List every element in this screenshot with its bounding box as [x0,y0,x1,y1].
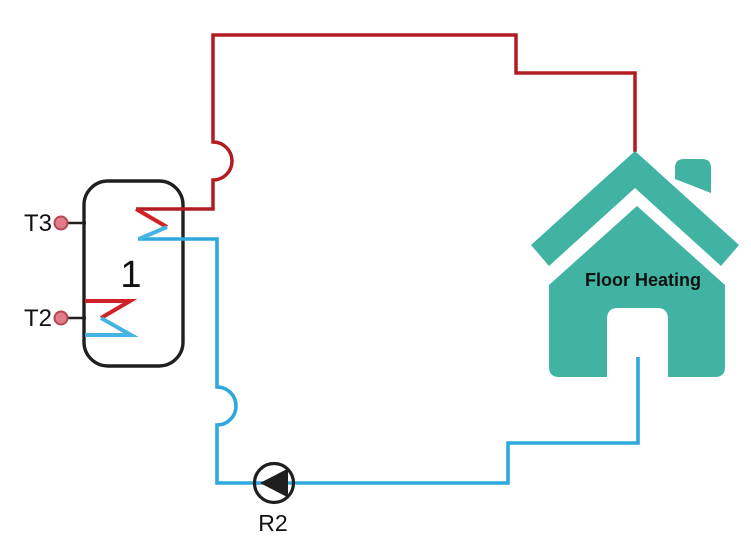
pump-r2: R2 [255,464,294,536]
house-icon: Floor Heating [531,151,739,377]
heating-schematic-canvas: 1 T3 T2 R2 Floor Heating [0,0,751,536]
hot-supply-pipe [136,35,635,209]
floor-heating-label: Floor Heating [585,270,701,290]
pump-label: R2 [258,510,287,536]
tank-number-label: 1 [120,254,141,296]
house-chimney [675,159,711,193]
sensor-t2-dot [55,312,68,325]
sensor-t2: T2 [24,305,86,332]
sensor-t3: T3 [24,210,86,237]
pump-triangle-icon [260,469,288,498]
sensor-t3-dot [55,217,68,230]
sensor-t2-label: T2 [24,305,52,332]
heating-schematic: 1 T3 T2 R2 Floor Heating [0,0,751,536]
sensor-t3-label: T3 [24,210,52,237]
